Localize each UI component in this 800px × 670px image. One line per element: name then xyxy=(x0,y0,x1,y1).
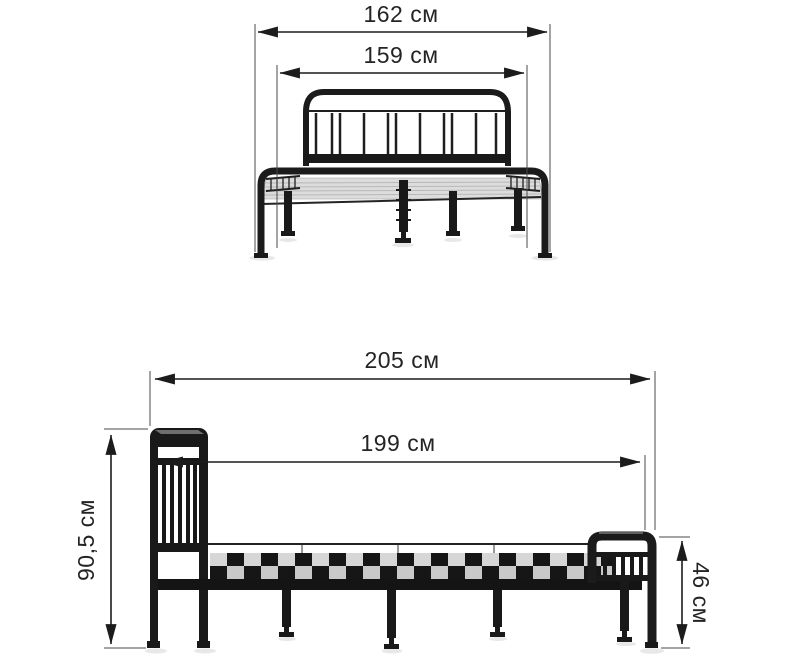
dimension-label-side-overall-length: 205 см xyxy=(364,347,439,373)
side-floor-shadows xyxy=(145,637,664,654)
side-support-legs xyxy=(279,590,505,649)
side-headboard xyxy=(147,428,210,648)
diagram-canvas: 162 см 159 см xyxy=(0,0,800,670)
side-headboard-slats xyxy=(162,465,197,545)
dimension-label-side-footboard-height: 46 см xyxy=(688,562,714,624)
side-footboard xyxy=(592,533,658,648)
bed-dimensions-diagram: 162 см 159 см xyxy=(0,0,800,670)
dimension-side-headboard-height: 90,5 см xyxy=(73,429,148,648)
front-view-bed-drawing xyxy=(249,92,558,261)
side-view: 205 см 199 см 90,5 см 46 см xyxy=(73,347,714,654)
front-siderail-right xyxy=(506,176,540,191)
front-headboard-slats xyxy=(316,113,496,154)
dimension-side-mattress-length: 199 см xyxy=(163,430,645,530)
dimension-label-front-overall-width: 162 см xyxy=(363,1,438,27)
dimension-side-footboard-height: 46 см xyxy=(659,537,714,648)
dimension-label-side-headboard-height: 90,5 см xyxy=(73,499,99,581)
front-headboard xyxy=(303,92,511,166)
front-center-leg xyxy=(395,180,411,243)
front-view: 162 см 159 см xyxy=(249,1,558,261)
dimension-label-front-mattress-width: 159 см xyxy=(363,42,438,68)
front-siderail-left xyxy=(266,176,300,191)
side-slat-deck xyxy=(158,544,642,590)
dimension-label-side-mattress-length: 199 см xyxy=(360,430,435,456)
